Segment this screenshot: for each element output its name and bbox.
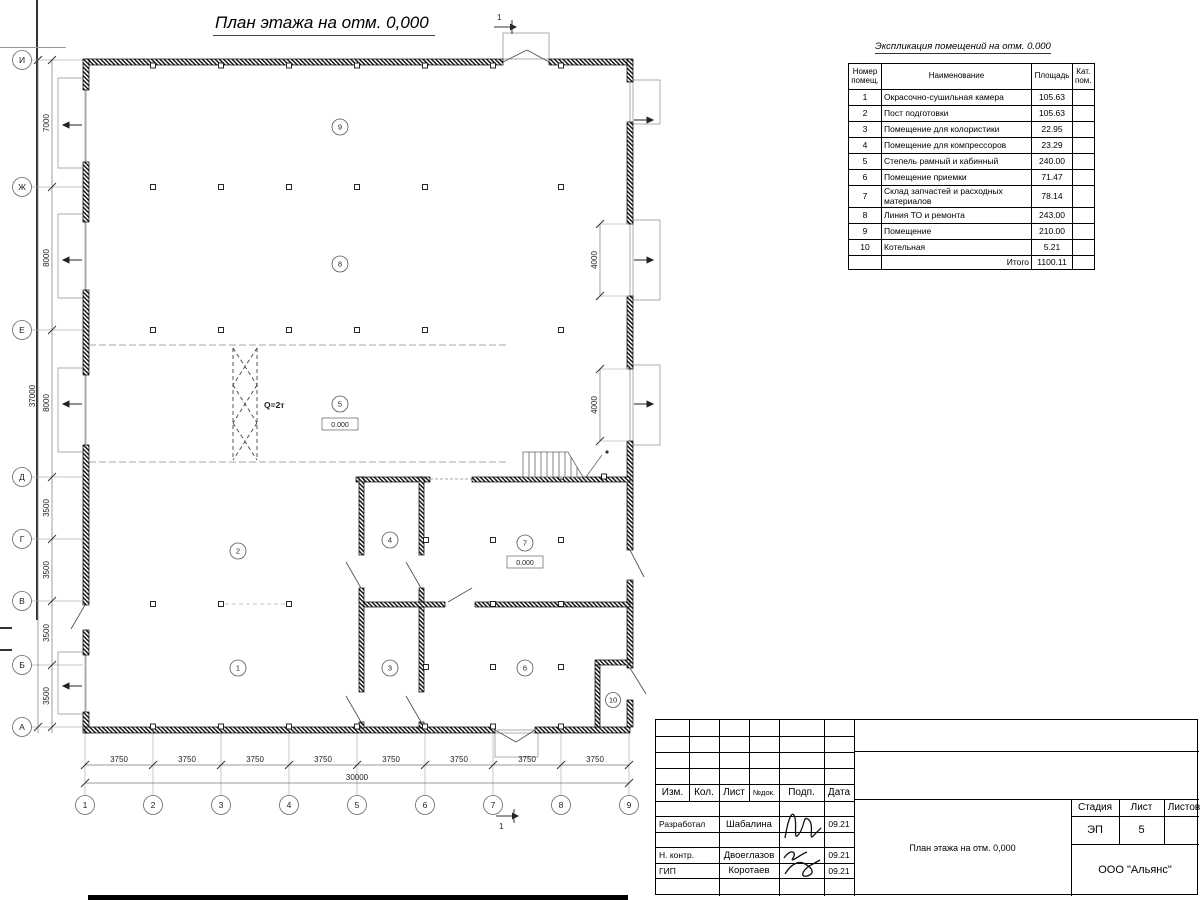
grid-bubble-row-labels: И Ж Е Д Г В Б А [18, 55, 26, 732]
stage-value: ЭП [1071, 816, 1119, 844]
rev-col-izm: Изм. [656, 784, 689, 801]
room-numbers: 1 2 3 4 5 6 7 8 9 10 [236, 123, 617, 705]
room-schedule-table: Номер помещ. Наименование Площадь Кат. п… [848, 63, 1095, 270]
svg-text:9: 9 [338, 123, 342, 132]
schedule-col-cat: Кат. пом. [1073, 64, 1095, 90]
svg-text:3750: 3750 [178, 755, 196, 764]
svg-text:3750: 3750 [314, 755, 332, 764]
schedule-total-label: Итого [882, 256, 1032, 270]
svg-text:8000: 8000 [42, 394, 51, 412]
section-mark-top: 1 [494, 13, 517, 34]
floor-plan: Q=2т 37000 7000 8000 [0, 0, 680, 860]
crane-label: Q=2т [264, 400, 284, 410]
sig-role: ГИП [656, 863, 722, 878]
svg-text:1: 1 [236, 664, 240, 673]
rev-col-podp: Подп. [779, 784, 824, 801]
svg-text:4: 4 [287, 800, 292, 810]
svg-text:4000: 4000 [590, 251, 599, 269]
svg-text:Е: Е [19, 325, 25, 335]
svg-text:1: 1 [83, 800, 88, 810]
rev-col-ndok: №док. [749, 784, 779, 801]
svg-text:Д: Д [19, 472, 25, 482]
sig-role: Н. контр. [656, 847, 722, 863]
svg-text:3750: 3750 [246, 755, 264, 764]
schedule-title: Экспликация помещений на отм. 0.000 [846, 41, 1080, 52]
svg-text:1: 1 [499, 822, 504, 831]
drawing-sheet: { "plan": { "title": "План этажа на отм.… [0, 0, 1200, 900]
svg-text:6: 6 [423, 800, 428, 810]
table-row: 4Помещение для компрессоров23.29 [849, 138, 1095, 154]
sig-date: 09.21 [824, 847, 854, 863]
svg-text:30000: 30000 [346, 773, 369, 782]
svg-text:6: 6 [523, 664, 527, 673]
svg-text:И: И [19, 55, 25, 65]
svg-text:4000: 4000 [590, 396, 599, 414]
svg-text:Г: Г [20, 534, 25, 544]
svg-text:5: 5 [355, 800, 360, 810]
sig-date: 09.21 [824, 816, 854, 832]
svg-text:3750: 3750 [518, 755, 536, 764]
sig-date: 09.21 [824, 863, 854, 878]
svg-text:3750: 3750 [110, 755, 128, 764]
svg-text:7: 7 [523, 539, 527, 548]
sig-name: Коротаев [719, 863, 779, 878]
svg-text:8: 8 [559, 800, 564, 810]
sig-name: Шабалина [719, 816, 779, 832]
table-row: 3Помещение для колористики22.95 [849, 122, 1095, 138]
svg-text:2: 2 [236, 547, 240, 556]
svg-text:10: 10 [609, 696, 617, 705]
svg-text:3: 3 [219, 800, 224, 810]
svg-text:7000: 7000 [42, 114, 51, 132]
sig-role: Разработал [656, 816, 722, 832]
svg-text:А: А [19, 722, 25, 732]
svg-text:0.000: 0.000 [516, 560, 534, 567]
svg-text:3500: 3500 [42, 624, 51, 642]
document-title: План этажа на отм. 0,000 [854, 799, 1071, 896]
svg-text:1: 1 [497, 13, 502, 22]
svg-text:3750: 3750 [450, 755, 468, 764]
schedule-header-row: Номер помещ. Наименование Площадь Кат. п… [849, 64, 1095, 90]
rev-col-kol: Кол. [689, 784, 719, 801]
svg-text:3500: 3500 [42, 499, 51, 517]
svg-text:0.000: 0.000 [331, 422, 349, 429]
sheet-number: 5 [1119, 816, 1164, 844]
table-row: 8Линия ТО и ремонта243.00 [849, 208, 1095, 224]
dimension-text-left: 37000 7000 8000 8000 3500 3500 3500 3500 [28, 114, 51, 705]
schedule-col-area: Площадь [1032, 64, 1073, 90]
stage-label: Стадия [1071, 799, 1119, 816]
grid-bubble-col-labels: 1 2 3 4 5 6 7 8 9 [83, 800, 632, 810]
table-row: 2Пост подготовки105.63 [849, 106, 1095, 122]
svg-text:9: 9 [627, 800, 632, 810]
crane-symbol [233, 348, 257, 460]
schedule-total-row: Итого 1100.11 [849, 256, 1095, 270]
schedule-total-area: 1100.11 [1032, 256, 1073, 270]
sheets-label: Листов [1164, 799, 1200, 816]
table-row: 9Помещение210.00 [849, 224, 1095, 240]
svg-text:Ж: Ж [18, 182, 26, 192]
svg-text:3750: 3750 [586, 755, 604, 764]
level-marks [322, 418, 543, 568]
rev-col-data: Дата [824, 784, 854, 801]
door-leaves [71, 50, 646, 742]
sheet-frame-bottom [88, 895, 628, 900]
svg-text:4: 4 [388, 536, 392, 545]
svg-text:3500: 3500 [42, 687, 51, 705]
table-row: 1Окрасочно-сушильная камера105.63 [849, 90, 1095, 106]
svg-text:В: В [19, 596, 25, 606]
opening-lines [86, 82, 630, 730]
sheet-label: Лист [1119, 799, 1164, 816]
svg-text:Б: Б [19, 660, 25, 670]
title-block: Изм. Кол. Лист №док. Подп. Дата Разработ… [655, 719, 1198, 895]
svg-text:8000: 8000 [42, 249, 51, 267]
gate-dimensions [596, 220, 628, 445]
svg-text:3: 3 [388, 664, 392, 673]
svg-text:8: 8 [338, 260, 342, 269]
svg-text:5: 5 [338, 400, 342, 409]
svg-text:2: 2 [151, 800, 156, 810]
table-row: 6Помещение приемки71.47 [849, 170, 1095, 186]
table-row: 10Котельная5.21 [849, 240, 1095, 256]
zone-dashed-lines [89, 345, 508, 604]
svg-text:3750: 3750 [382, 755, 400, 764]
signature [779, 840, 824, 880]
table-row: 5Степель рамный и кабинный240.00 [849, 154, 1095, 170]
table-row: 7Склад запчастей и расходных материалов7… [849, 186, 1095, 208]
exterior-walls [83, 59, 633, 733]
staircase [523, 450, 609, 477]
company-name: ООО "Альянс" [1071, 844, 1199, 896]
rev-col-list: Лист [719, 784, 749, 801]
schedule-col-name: Наименование [882, 64, 1032, 90]
room-bubbles [230, 119, 621, 708]
svg-text:7: 7 [491, 800, 496, 810]
sig-name: Двоеглазов [719, 847, 779, 863]
schedule-col-num: Номер помещ. [849, 64, 882, 90]
columns [151, 63, 607, 729]
svg-text:37000: 37000 [28, 384, 37, 407]
grid-lines [31, 60, 629, 795]
svg-text:3500: 3500 [42, 561, 51, 579]
